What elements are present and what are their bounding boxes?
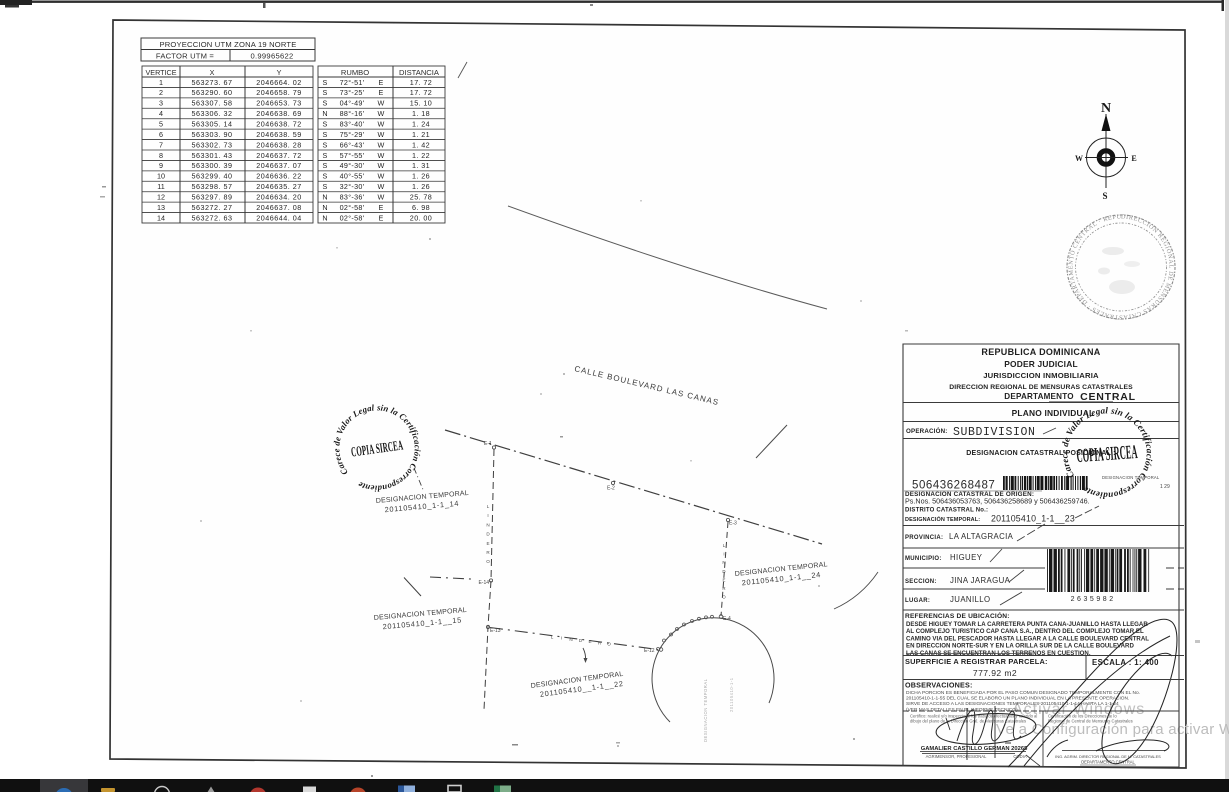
svg-text:2046664. 02: 2046664. 02 bbox=[256, 78, 301, 87]
svg-text:2046644. 04: 2046644. 04 bbox=[256, 213, 301, 222]
svg-text:N: N bbox=[569, 637, 572, 642]
svg-text:57°-55': 57°-55' bbox=[340, 151, 365, 160]
svg-text:W: W bbox=[378, 109, 385, 118]
svg-text:Y: Y bbox=[277, 68, 282, 77]
svg-text:E: E bbox=[379, 88, 384, 97]
svg-text:201105410-1-1: 201105410-1-1 bbox=[729, 677, 734, 712]
svg-text:OBSERVACIONES:: OBSERVACIONES: bbox=[905, 681, 973, 690]
svg-text:2046638. 69: 2046638. 69 bbox=[256, 109, 301, 118]
svg-text:5: 5 bbox=[159, 120, 163, 129]
svg-text:17. 72: 17. 72 bbox=[410, 88, 432, 97]
svg-text:201105410_1-1__23: 201105410_1-1__23 bbox=[991, 514, 1075, 524]
svg-text:L: L bbox=[551, 635, 554, 640]
svg-text:W: W bbox=[1075, 154, 1083, 163]
svg-text:201105410-1-1-55 DEL CUAL SE E: 201105410-1-1-55 DEL CUAL SE ELABORO UN … bbox=[906, 696, 1129, 702]
svg-text:S: S bbox=[323, 88, 328, 97]
svg-text:2046653. 73: 2046653. 73 bbox=[256, 99, 301, 108]
svg-text:75°-29': 75°-29' bbox=[340, 130, 365, 139]
svg-text:6. 98: 6. 98 bbox=[412, 203, 430, 212]
svg-text:RUMBO: RUMBO bbox=[341, 68, 369, 77]
svg-text:563272. 27: 563272. 27 bbox=[192, 203, 233, 212]
svg-text:LUGAR:: LUGAR: bbox=[905, 598, 930, 604]
svg-text:563290. 60: 563290. 60 bbox=[192, 88, 233, 97]
svg-text:DISTRITO CATASTRAL No.:: DISTRITO CATASTRAL No.: bbox=[905, 508, 988, 514]
svg-text:W: W bbox=[378, 172, 385, 181]
svg-text:O: O bbox=[486, 559, 490, 564]
svg-text:1. 26: 1. 26 bbox=[412, 182, 430, 191]
svg-text:L: L bbox=[487, 504, 490, 509]
svg-text:88°-16': 88°-16' bbox=[340, 109, 365, 118]
svg-text:REFERENCIAS DE UBICACIÓN:: REFERENCIAS DE UBICACIÓN: bbox=[905, 611, 1010, 620]
svg-text:W: W bbox=[378, 151, 385, 160]
svg-text:MUNICIPIO:: MUNICIPIO: bbox=[905, 556, 942, 562]
svg-text:E: E bbox=[486, 541, 489, 546]
svg-text:3: 3 bbox=[159, 99, 163, 108]
svg-text:72°-51': 72°-51' bbox=[340, 78, 365, 87]
svg-text:1: 1 bbox=[159, 78, 163, 87]
svg-text:Regional de Central de Mensura: Regional de Central de Mensuras Catastra… bbox=[1048, 719, 1133, 724]
svg-text:E-2: E-2 bbox=[607, 486, 615, 492]
svg-text:PODER JUDICIAL: PODER JUDICIAL bbox=[1004, 359, 1078, 369]
svg-text:777.92 m2: 777.92 m2 bbox=[973, 668, 1017, 678]
svg-text:15. 10: 15. 10 bbox=[410, 99, 432, 108]
svg-text:S: S bbox=[1102, 191, 1107, 201]
svg-text:25. 78: 25. 78 bbox=[410, 193, 432, 202]
svg-text:DESIGNACION TEMPORAL: DESIGNACION TEMPORAL bbox=[1102, 475, 1160, 480]
svg-text:S: S bbox=[323, 161, 328, 170]
svg-text:02°-58': 02°-58' bbox=[340, 213, 365, 222]
svg-text:S: S bbox=[323, 120, 328, 129]
svg-text:SUPERFICIE A REGISTRAR PARCELA: SUPERFICIE A REGISTRAR PARCELA: bbox=[905, 657, 1048, 666]
svg-text:COPIA SIRCEA: COPIA SIRCEA bbox=[1076, 442, 1138, 467]
svg-text:N: N bbox=[1101, 101, 1111, 116]
svg-text:DICHA PORCION ES BENEFICIADA P: DICHA PORCION ES BENEFICIADA POR EL PASO… bbox=[906, 690, 1140, 696]
svg-text:83°-36': 83°-36' bbox=[340, 193, 365, 202]
svg-text:HIGUEY: HIGUEY bbox=[950, 553, 983, 562]
svg-text:JURISDICCION INMOBILIARIA: JURISDICCION INMOBILIARIA bbox=[983, 371, 1099, 380]
svg-text:563302. 73: 563302. 73 bbox=[192, 140, 233, 149]
svg-text:E-3: E-3 bbox=[729, 521, 737, 527]
svg-text:S: S bbox=[323, 99, 328, 108]
svg-text:JINA JARAGUA: JINA JARAGUA bbox=[950, 576, 1011, 585]
svg-text:E-14: E-14 bbox=[478, 580, 489, 586]
svg-text:20. 00: 20. 00 bbox=[410, 213, 432, 222]
svg-text:E-12: E-12 bbox=[644, 648, 655, 654]
svg-text:EN DIRECCION NORTE-SUR Y EN LA: EN DIRECCION NORTE-SUR Y EN LA ORILLA SU… bbox=[906, 643, 1134, 650]
svg-text:2046635. 27: 2046635. 27 bbox=[256, 182, 301, 191]
svg-text:DISTANCIA: DISTANCIA bbox=[399, 68, 440, 77]
svg-text:14: 14 bbox=[157, 213, 165, 222]
svg-text:W: W bbox=[378, 99, 385, 108]
svg-text:73°-25': 73°-25' bbox=[340, 88, 365, 97]
svg-text:dibujo del plano de la Direcci: dibujo del plano de la Dirección Gral. d… bbox=[910, 719, 1026, 724]
svg-text:I: I bbox=[561, 636, 562, 641]
svg-text:DIRECCION REGIONAL DE MENSURAS: DIRECCION REGIONAL DE MENSURAS CATASTRAL… bbox=[949, 384, 1133, 391]
svg-text:N: N bbox=[486, 522, 489, 527]
svg-text:2046638. 28: 2046638. 28 bbox=[256, 140, 301, 149]
svg-text:563299. 40: 563299. 40 bbox=[192, 172, 233, 181]
svg-text:563300. 39: 563300. 39 bbox=[192, 161, 233, 170]
svg-text:DEPARTAMENTO: DEPARTAMENTO bbox=[1004, 392, 1073, 401]
svg-text:AL COMPLEJO TURISTICO CAP CANA: AL COMPLEJO TURISTICO CAP CANA S.A., DEN… bbox=[906, 628, 1144, 635]
svg-text:JUANILLO: JUANILLO bbox=[950, 595, 990, 604]
svg-text:1 29: 1 29 bbox=[1160, 484, 1170, 490]
svg-text:E-1: E-1 bbox=[484, 441, 492, 447]
svg-text:E: E bbox=[379, 203, 384, 212]
svg-text:66°-43': 66°-43' bbox=[340, 140, 365, 149]
svg-text:R: R bbox=[722, 586, 725, 591]
svg-text:563305. 14: 563305. 14 bbox=[192, 120, 233, 129]
svg-text:32°-30': 32°-30' bbox=[340, 182, 365, 191]
svg-text:1. 18: 1. 18 bbox=[412, 109, 430, 118]
svg-text:2046637. 08: 2046637. 08 bbox=[256, 203, 301, 212]
svg-text:DEPARTAMENTO CENTRAL: DEPARTAMENTO CENTRAL bbox=[1081, 760, 1135, 765]
svg-text:11: 11 bbox=[157, 182, 164, 191]
svg-text:W: W bbox=[378, 161, 385, 170]
svg-text:LA ALTAGRACIA: LA ALTAGRACIA bbox=[949, 532, 1014, 541]
svg-text:506436268487: 506436268487 bbox=[912, 480, 995, 492]
svg-text:AGRIMENSOR, PROFESIONAL: AGRIMENSOR, PROFESIONAL bbox=[926, 754, 987, 759]
svg-text:CENTRAL: CENTRAL bbox=[1080, 391, 1136, 403]
svg-text:S: S bbox=[323, 182, 328, 191]
svg-text:1. 42: 1. 42 bbox=[412, 140, 430, 149]
svg-text:I: I bbox=[723, 552, 724, 557]
svg-text:DESIGNACIÓN TEMPORAL:: DESIGNACIÓN TEMPORAL: bbox=[905, 515, 980, 523]
svg-text:VERTICE: VERTICE bbox=[145, 68, 176, 77]
svg-text:2046637. 07: 2046637. 07 bbox=[256, 161, 301, 170]
svg-text:FACTOR UTM =: FACTOR UTM = bbox=[156, 52, 215, 61]
svg-text:563298. 57: 563298. 57 bbox=[192, 182, 233, 191]
svg-text:S: S bbox=[323, 140, 328, 149]
svg-text:17. 72: 17. 72 bbox=[410, 78, 432, 87]
svg-text:I: I bbox=[487, 513, 488, 518]
svg-text:W: W bbox=[378, 182, 385, 191]
svg-text:2: 2 bbox=[159, 88, 163, 97]
svg-text:(VER MAS DETALLES EN EL INFORM: (VER MAS DETALLES EN EL INFORME TECNICO) bbox=[906, 707, 1018, 713]
svg-text:1. 24: 1. 24 bbox=[412, 120, 430, 129]
svg-text:2046636. 22: 2046636. 22 bbox=[256, 172, 301, 181]
svg-text:W: W bbox=[378, 120, 385, 129]
svg-text:563273. 67: 563273. 67 bbox=[192, 78, 233, 87]
svg-text:N: N bbox=[322, 203, 327, 212]
svg-text:O: O bbox=[607, 641, 611, 646]
svg-text:Ps.Nos. 506436053763, 506436: Ps.Nos. 506436053763, 506436258689 y 506… bbox=[905, 497, 1090, 506]
svg-text:W: W bbox=[378, 140, 385, 149]
svg-text:PROYECCION UTM ZONA 19 NORTE: PROYECCION UTM ZONA 19 NORTE bbox=[159, 40, 296, 49]
svg-text:DESDE HIGUEY TOMAR LA CARRETER: DESDE HIGUEY TOMAR LA CARRETERA PUNTA CA… bbox=[906, 621, 1148, 628]
svg-text:40°-55': 40°-55' bbox=[340, 172, 365, 181]
svg-text:D: D bbox=[722, 569, 725, 574]
svg-text:2046634. 20: 2046634. 20 bbox=[256, 193, 301, 202]
svg-text:X: X bbox=[210, 68, 215, 77]
svg-text:563301. 43: 563301. 43 bbox=[192, 151, 233, 160]
svg-text:83°-40': 83°-40' bbox=[340, 120, 365, 129]
svg-text:REPUBLICA DOMINICANA: REPUBLICA DOMINICANA bbox=[981, 347, 1100, 357]
svg-text:E: E bbox=[723, 577, 726, 582]
svg-text:9: 9 bbox=[159, 161, 163, 170]
svg-text:2046638. 59: 2046638. 59 bbox=[256, 130, 301, 139]
svg-text:1. 31: 1. 31 bbox=[412, 161, 430, 170]
svg-text:7: 7 bbox=[159, 140, 163, 149]
svg-text:SECCION:: SECCION: bbox=[905, 579, 937, 585]
svg-text:563306. 32: 563306. 32 bbox=[192, 109, 233, 118]
svg-text:49°-30': 49°-30' bbox=[340, 161, 365, 170]
svg-text:4: 4 bbox=[159, 109, 163, 118]
svg-text:OPERACIÓN:: OPERACIÓN: bbox=[906, 427, 948, 435]
svg-text:563297. 89: 563297. 89 bbox=[192, 193, 233, 202]
svg-text:PROVINCIA:: PROVINCIA: bbox=[905, 535, 943, 541]
svg-text:13: 13 bbox=[157, 203, 165, 212]
svg-text:6: 6 bbox=[159, 130, 163, 139]
svg-text:12: 12 bbox=[157, 193, 165, 202]
svg-text:W: W bbox=[378, 193, 385, 202]
svg-text:8: 8 bbox=[159, 151, 163, 160]
svg-text:04°-49': 04°-49' bbox=[340, 99, 365, 108]
svg-text:O: O bbox=[722, 595, 726, 600]
svg-text:2046637. 72: 2046637. 72 bbox=[256, 151, 301, 160]
svg-text:SIRVE DE ACCESO A LAS DESIGNAC: SIRVE DE ACCESO A LAS DESIGNACIONES TEMP… bbox=[906, 701, 1119, 707]
svg-text:E: E bbox=[379, 213, 384, 222]
svg-text:CAMINO VIA DEL PESCADOR HASTA: CAMINO VIA DEL PESCADOR HASTA LLEGAR A L… bbox=[906, 635, 1149, 642]
svg-text:S: S bbox=[323, 78, 328, 87]
svg-text:N: N bbox=[722, 560, 725, 565]
svg-text:563307. 58: 563307. 58 bbox=[192, 99, 233, 108]
svg-text:N: N bbox=[322, 109, 327, 118]
svg-text:2046658. 79: 2046658. 79 bbox=[256, 88, 301, 97]
svg-text:563303. 90: 563303. 90 bbox=[192, 130, 233, 139]
svg-text:W: W bbox=[378, 130, 385, 139]
svg-text:E: E bbox=[1131, 154, 1136, 163]
svg-text:N: N bbox=[322, 193, 327, 202]
svg-text:SUBDIVISION: SUBDIVISION bbox=[953, 426, 1036, 439]
svg-text:S: S bbox=[323, 130, 328, 139]
svg-text:2046638. 72: 2046638. 72 bbox=[256, 120, 301, 129]
svg-text:1. 21: 1. 21 bbox=[412, 130, 430, 139]
svg-text:1. 22: 1. 22 bbox=[412, 151, 430, 160]
svg-text:1. 26: 1. 26 bbox=[412, 172, 430, 181]
svg-text:S: S bbox=[323, 151, 328, 160]
svg-text:DESIGNACION TEMPORAL: DESIGNACION TEMPORAL bbox=[703, 678, 708, 742]
svg-text:S: S bbox=[323, 172, 328, 181]
svg-text:10: 10 bbox=[157, 172, 165, 181]
svg-text:E: E bbox=[379, 78, 384, 87]
svg-text:2 6 3 5 9 8 2: 2 6 3 5 9 8 2 bbox=[1071, 596, 1114, 603]
svg-text:E: E bbox=[588, 639, 591, 644]
svg-text:0.99965622: 0.99965622 bbox=[250, 52, 293, 61]
svg-text:ING. AGRIM. DIRECTOR REGIONAL: ING. AGRIM. DIRECTOR REGIONAL DE M. CATA… bbox=[1055, 754, 1161, 759]
svg-text:563272. 63: 563272. 63 bbox=[192, 213, 233, 222]
svg-text:N: N bbox=[322, 213, 327, 222]
svg-text:02°-58': 02°-58' bbox=[340, 203, 365, 212]
svg-text:Ve a Configuración para activa: Ve a Configuración para activar Win bbox=[996, 721, 1229, 738]
